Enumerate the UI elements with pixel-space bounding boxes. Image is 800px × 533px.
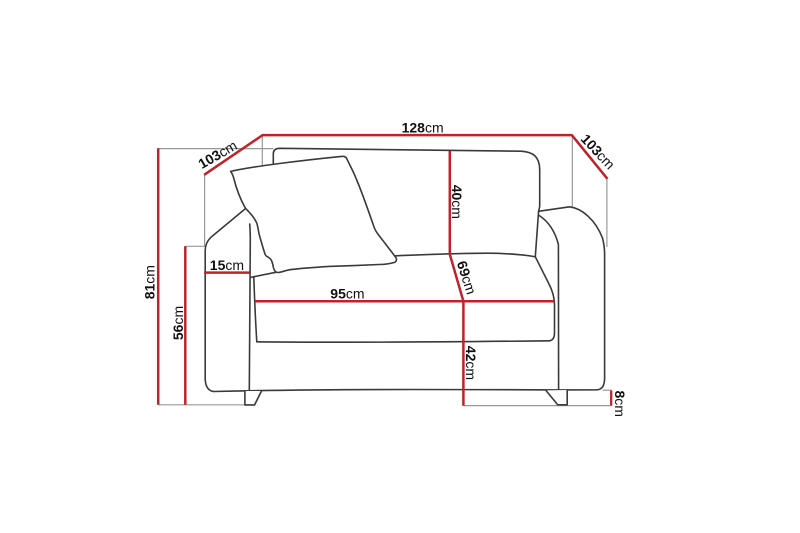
svg-text:42cm: 42cm [463, 346, 479, 380]
svg-text:40cm: 40cm [449, 185, 465, 219]
svg-text:95cm: 95cm [330, 286, 364, 302]
svg-text:15cm: 15cm [210, 257, 244, 273]
svg-text:56cm: 56cm [170, 306, 186, 340]
svg-text:81cm: 81cm [141, 265, 157, 299]
svg-text:128cm: 128cm [402, 119, 444, 135]
svg-text:8cm: 8cm [612, 391, 628, 417]
